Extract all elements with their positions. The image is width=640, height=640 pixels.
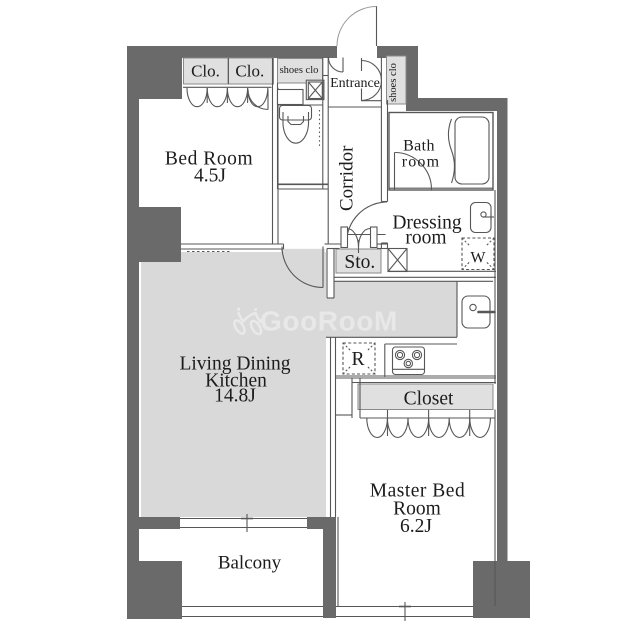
svg-text:Bath: Bath [403,138,435,155]
svg-text:W: W [470,249,486,266]
svg-text:room: room [405,228,446,249]
svg-text:shoes clo: shoes clo [280,65,319,76]
svg-text:Closet: Closet [404,389,454,410]
svg-text:shoes clo: shoes clo [388,63,399,102]
svg-text:Clo.: Clo. [191,61,220,80]
svg-text:Entrance: Entrance [330,76,380,91]
svg-text:GooRooM: GooRooM [260,306,398,337]
svg-text:6.2J: 6.2J [400,516,432,537]
svg-text:Clo.: Clo. [235,61,264,80]
svg-text:14.8J: 14.8J [214,386,256,407]
svg-text:R: R [351,349,364,370]
svg-text:Balcony: Balcony [218,553,282,574]
svg-text:Corridor: Corridor [336,145,357,211]
svg-text:4.5J: 4.5J [194,166,226,187]
svg-text:room: room [402,153,441,170]
svg-text:Sto.: Sto. [344,252,375,273]
